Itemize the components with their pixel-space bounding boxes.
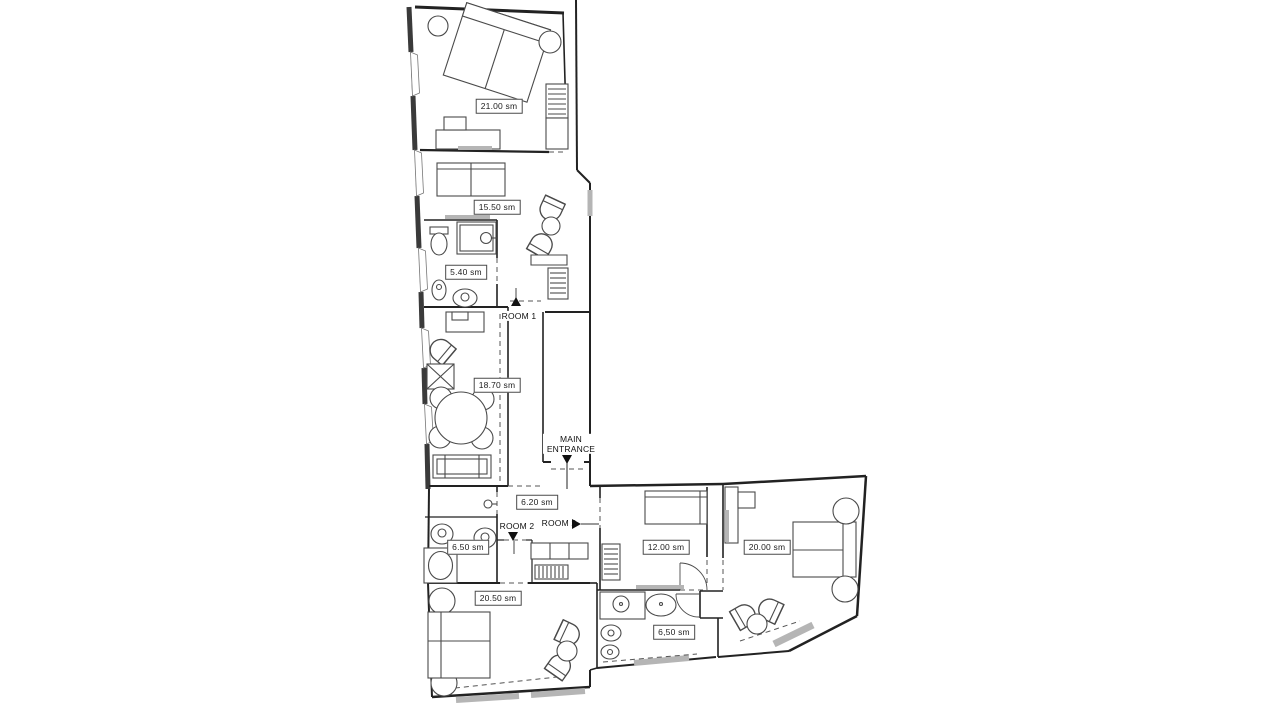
bed-icon	[443, 3, 550, 102]
wall-lamp-icon	[484, 500, 497, 508]
bidet-icon	[432, 280, 446, 300]
area-label-bedroom-12: 12.00 sm	[643, 540, 690, 555]
area-label-bedroom-20-5: 20.50 sm	[475, 591, 522, 606]
living-18-7-furniture	[426, 312, 494, 478]
cupboard-icon	[427, 364, 454, 389]
nightstand-icon	[833, 498, 859, 524]
kitchen-cabinet-icon	[446, 312, 484, 332]
bed-icon	[437, 163, 505, 196]
desk-icon	[436, 117, 500, 149]
sink-icon	[600, 592, 645, 619]
counter-icon	[531, 255, 567, 265]
radiator-icon	[602, 544, 620, 580]
entrance-tick-lines	[514, 288, 599, 554]
main-entrance-label: MAIN ENTRANCE	[543, 434, 599, 454]
area-label-hall-6-2: 6.20 sm	[516, 495, 558, 510]
interior-walls	[420, 13, 723, 668]
bedroom-21-furniture	[428, 3, 568, 149]
nightstand-icon	[539, 31, 561, 53]
wardrobe-icon	[546, 118, 568, 149]
shower-icon	[457, 222, 497, 254]
bed-icon	[793, 522, 856, 577]
sink-icon	[453, 289, 477, 307]
desk-chair-icon	[738, 492, 755, 508]
side-table-icon	[557, 641, 577, 661]
bedroom-20-furniture	[725, 487, 859, 634]
area-label-bedroom-21: 21.00 sm	[476, 99, 523, 114]
area-label-bathroom-5-4: 5.40 sm	[445, 265, 487, 280]
entrance-arrow-icon	[508, 532, 518, 541]
radiator-icon	[548, 268, 568, 299]
floor-plan-canvas: 21.00 sm 15.50 sm 5.40 sm 18.70 sm 6.20 …	[0, 0, 1280, 720]
bed-icon	[428, 612, 490, 678]
floor-plan-drawing	[0, 0, 1280, 720]
area-label-bathroom-6-5: 6.50 sm	[447, 540, 489, 555]
toilet-icon	[430, 227, 448, 255]
radiator-icon	[546, 84, 568, 118]
toilet-icon	[601, 625, 621, 641]
side-table-icon	[747, 614, 767, 634]
radiator-icon	[535, 565, 568, 579]
bed-icon	[645, 491, 707, 524]
bathtub-icon	[646, 594, 676, 616]
area-label-bedroom-20: 20.00 sm	[744, 540, 791, 555]
nightstand-icon	[832, 576, 858, 602]
entrance-arrow-icon	[572, 519, 581, 529]
nightstand-icon	[429, 588, 455, 614]
nightstand-icon	[428, 16, 448, 36]
sofa-icon	[433, 455, 491, 478]
dining-table-icon	[429, 387, 494, 449]
entrance-arrow-icon	[562, 455, 572, 464]
bidet-icon	[601, 645, 619, 659]
area-label-bathroom-6-5-low: 6,50 sm	[653, 625, 695, 640]
area-label-living-18-7: 18.70 sm	[474, 378, 521, 393]
wardrobe-icon	[531, 543, 588, 559]
room-1-entrance-label: ROOM 1	[501, 311, 538, 321]
hall-6-2-furniture	[531, 543, 588, 579]
room-2-entrance-label-a: ROOM 2	[499, 521, 536, 531]
area-label-bedroom-15-5: 15.50 sm	[474, 200, 521, 215]
entrance-arrow-icon	[511, 297, 521, 306]
side-table-icon	[542, 217, 560, 235]
